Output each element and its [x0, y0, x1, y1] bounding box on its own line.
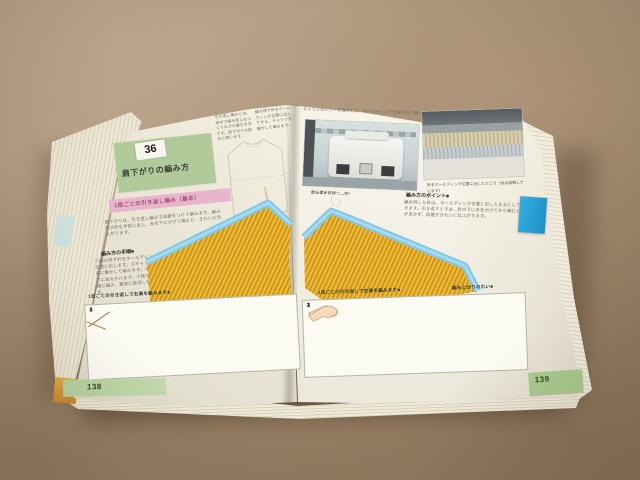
page-number-band-right: 139 [528, 369, 583, 396]
needles-illustration [86, 315, 87, 341]
photo-of-open-book: 引き返し編みとは、途中で編み残しをつくりながら編む方法です。肩下がりの部分に使い… [0, 0, 640, 480]
knitting-illustration [87, 341, 89, 373]
knitting-illustration [304, 332, 305, 370]
photo-label: ロシアレバー……○ [311, 189, 347, 197]
section-number-tab: 36 [135, 139, 167, 160]
needles-illustration [86, 315, 87, 341]
page-number: 139 [528, 371, 550, 384]
yarn-illustration [88, 312, 110, 328]
right-page-body-text: 編み残した針は、ホールディング位置に出したままにしておきます。引き返すときは、針… [404, 199, 526, 221]
section-title: 肩下がりの編み方 [121, 159, 214, 180]
needle-bed-photo [422, 108, 524, 179]
knitting-illustration [304, 336, 305, 368]
blue-index-tab [518, 196, 547, 234]
knitting-illustration [304, 335, 305, 369]
carriage-knob-left [336, 164, 349, 175]
step-number: 3 [89, 307, 92, 313]
carriage-knob-right [381, 166, 394, 177]
bed-front-band [424, 156, 525, 179]
carriage-handle [345, 130, 389, 140]
carriage-photo [303, 120, 420, 191]
needles-illustration [86, 315, 87, 341]
carriage-dial [359, 163, 372, 175]
left-edge-index-tab [53, 214, 75, 247]
right-diagram-panel: 1 2 3 [302, 292, 529, 378]
page-number-band-left: 138 [63, 378, 166, 397]
page-number: 138 [63, 379, 102, 392]
knitting-illustration [87, 340, 89, 374]
knitting-illustration [87, 337, 89, 375]
hand-illustration [302, 302, 343, 332]
knitting-carriage [328, 136, 404, 180]
left-diagram-panel: 1 2 3 [84, 293, 301, 380]
